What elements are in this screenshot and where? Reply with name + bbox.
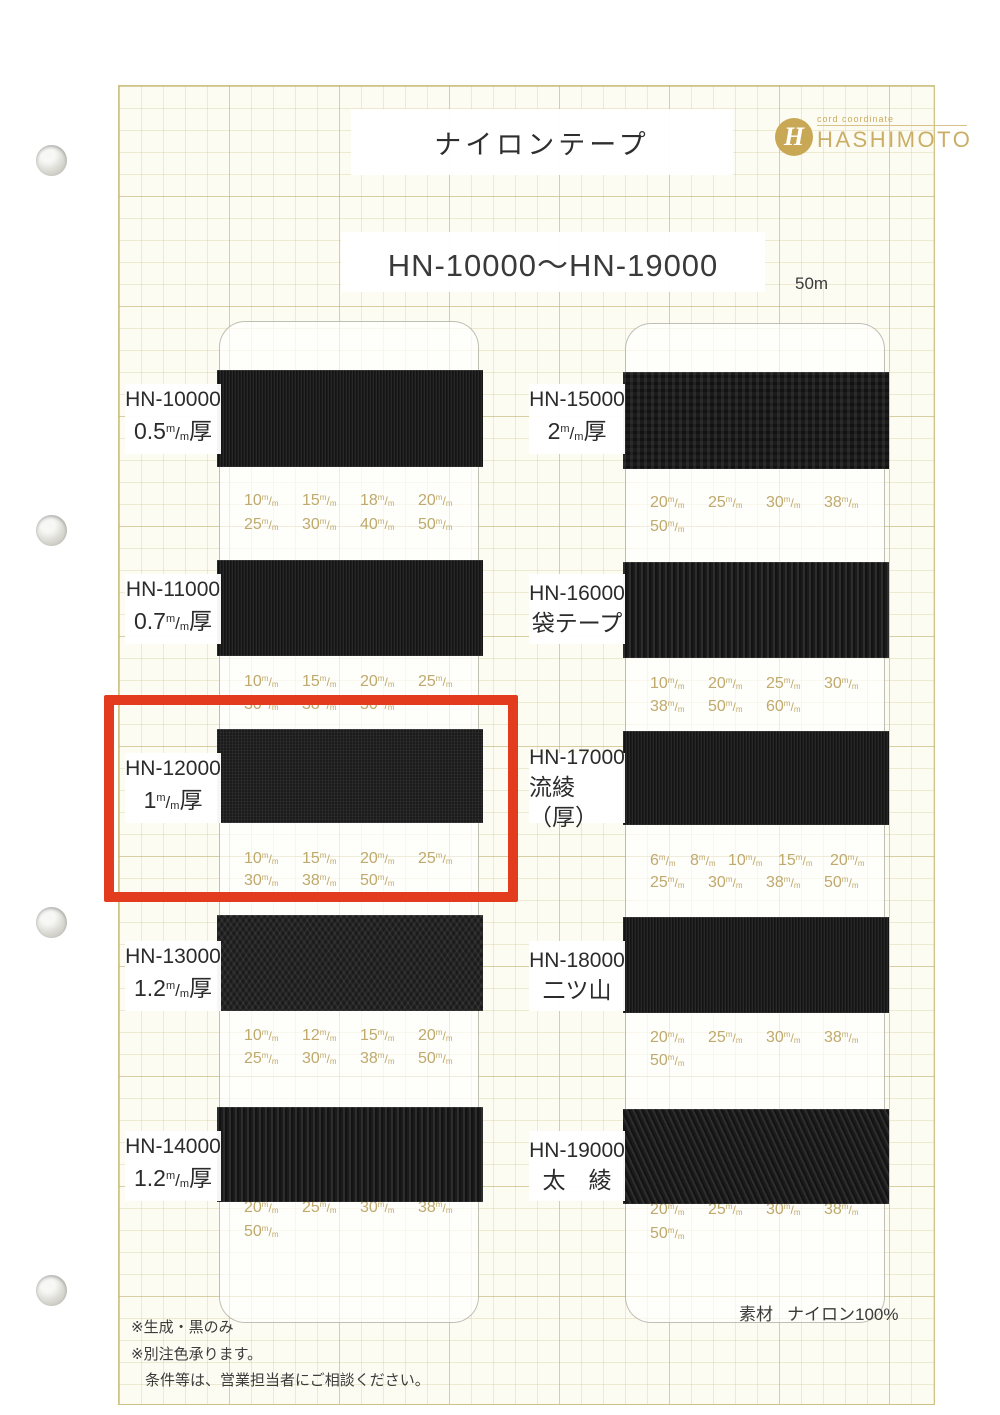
hashimoto-monogram-icon: H — [775, 118, 813, 156]
mm-unit: m/m — [668, 672, 685, 696]
size-list-hn-15000: 20m/m25m/m30m/m38m/m — [626, 491, 884, 515]
mm-unit: m/m — [166, 604, 189, 642]
mm-unit: m/m — [842, 491, 859, 515]
mm-unit: m/m — [320, 489, 337, 513]
mm-unit: m/m — [784, 695, 801, 719]
mm-unit: m/m — [436, 1024, 453, 1048]
size-value: 10 — [650, 675, 668, 692]
product-spec: 太 綾 — [543, 1165, 612, 1195]
mm-unit: m/m — [436, 1047, 453, 1071]
product-spec: 2m/m厚 — [548, 414, 607, 452]
size-item: 15m/m — [302, 489, 360, 513]
size-value: 40 — [360, 516, 378, 533]
size-value: 25 — [650, 874, 668, 891]
product-code: HN-17000 — [529, 744, 625, 772]
mm-unit: m/m — [668, 515, 685, 539]
tape-sample-hn-18000 — [623, 917, 889, 1013]
product-spec: 1.2m/m厚 — [134, 971, 212, 1009]
size-value: 50 — [650, 1225, 668, 1242]
size-value: 20 — [650, 1029, 668, 1046]
mm-unit: m/m — [320, 1024, 337, 1048]
size-value: 50 — [650, 518, 668, 535]
size-value: 38 — [824, 494, 842, 511]
size-item: 25m/m — [244, 513, 302, 537]
tape-sample-hn-19000 — [623, 1109, 889, 1204]
size-item: 20m/m — [418, 1024, 476, 1048]
size-item: 10m/m — [650, 672, 708, 696]
size-item: 38m/m — [360, 1047, 418, 1071]
product-code: HN-14000 — [125, 1133, 221, 1161]
product-code: HN-11000 — [126, 576, 220, 604]
mm-unit: m/m — [746, 849, 763, 873]
size-item: 20m/m — [650, 1026, 708, 1050]
size-list-hn-10000: 25m/m30m/m40m/m50m/m — [220, 513, 478, 537]
mm-unit: m/m — [668, 491, 685, 515]
mm-unit: m/m — [842, 871, 859, 895]
size-list-hn-19000: 50m/m — [626, 1222, 884, 1246]
mm-unit: m/m — [784, 1026, 801, 1050]
mm-unit: m/m — [784, 871, 801, 895]
size-item: 10m/m — [728, 849, 778, 873]
mm-unit: m/m — [668, 695, 685, 719]
size-item: 60m/m — [766, 695, 824, 719]
product-code: HN-19000 — [529, 1137, 625, 1165]
size-list-hn-15000: 50m/m — [626, 515, 884, 539]
size-value: 25 — [708, 1029, 726, 1046]
tape-sample-hn-14000 — [217, 1107, 483, 1202]
tape-sample-hn-13000 — [217, 915, 483, 1011]
product-code: HN-18000 — [529, 947, 625, 975]
mm-unit: m/m — [262, 1047, 279, 1071]
mm-unit: m/m — [166, 1161, 189, 1199]
size-item: 38m/m — [766, 871, 824, 895]
size-value: 50 — [244, 1223, 262, 1240]
material-note: 素材ナイロン100% — [739, 1300, 898, 1325]
size-value: 20 — [830, 852, 848, 869]
product-label-hn-13000: HN-130001.2m/m厚 — [125, 941, 221, 1011]
mm-unit: m/m — [659, 849, 676, 873]
size-item: 50m/m — [650, 1222, 708, 1246]
product-code: HN-16000 — [529, 580, 625, 608]
size-item: 30m/m — [766, 1026, 824, 1050]
size-value: 25 — [708, 494, 726, 511]
product-spec: 1.2m/m厚 — [134, 1161, 212, 1199]
size-item: 20m/m — [418, 489, 476, 513]
tape-sample-hn-17000 — [623, 731, 889, 825]
mm-unit: m/m — [378, 489, 395, 513]
mm-unit: m/m — [378, 1047, 395, 1071]
size-value: 20 — [360, 673, 378, 690]
size-value: 38 — [824, 1029, 842, 1046]
mm-unit: m/m — [726, 491, 743, 515]
binder-hole — [36, 145, 67, 176]
material-label: 素材 — [739, 1305, 773, 1324]
footer-note: 条件等は、営業担当者にご相談ください。 — [145, 1369, 430, 1390]
mm-unit: m/m — [784, 491, 801, 515]
size-value: 50 — [824, 874, 842, 891]
size-item: 20m/m — [830, 849, 886, 873]
size-value: 25 — [418, 673, 436, 690]
size-value: 30 — [302, 1050, 320, 1067]
mm-unit: m/m — [726, 672, 743, 696]
size-value: 50 — [650, 1052, 668, 1069]
size-value: 30 — [302, 516, 320, 533]
size-value: 10 — [244, 673, 262, 690]
mm-unit: m/m — [166, 414, 189, 452]
size-list-hn-18000: 50m/m — [626, 1049, 884, 1073]
size-item: 30m/m — [302, 513, 360, 537]
size-value: 8 — [690, 852, 699, 869]
size-value: 15 — [360, 1027, 378, 1044]
size-value: 30 — [766, 1029, 784, 1046]
size-value: 20 — [418, 492, 436, 509]
size-item: 50m/m — [708, 695, 766, 719]
sample-card-right: 20m/m25m/m30m/m38m/m50m/m10m/m20m/m25m/m… — [625, 323, 885, 1323]
product-code: HN-15000 — [529, 386, 625, 414]
product-label-hn-17000: HN-17000流綾（厚） — [529, 753, 625, 823]
roll-length-note: 50m — [795, 274, 828, 294]
mm-unit: m/m — [796, 849, 813, 873]
page-title: ナイロンテープ — [434, 123, 649, 162]
size-value: 10 — [244, 492, 262, 509]
product-label-hn-10000: HN-100000.5m/m厚 — [125, 384, 221, 454]
size-value: 10 — [728, 852, 746, 869]
size-item: 38m/m — [824, 1026, 882, 1050]
mm-unit: m/m — [784, 672, 801, 696]
mm-unit: m/m — [262, 513, 279, 537]
product-label-hn-11000: HN-110000.7m/m厚 — [125, 574, 221, 644]
product-spec: 0.7m/m厚 — [134, 604, 212, 642]
size-item: 25m/m — [244, 1047, 302, 1071]
mm-unit: m/m — [668, 1222, 685, 1246]
size-value: 25 — [244, 1050, 262, 1067]
size-list-hn-16000: 10m/m20m/m25m/m30m/m — [626, 672, 884, 696]
size-item: 25m/m — [766, 672, 824, 696]
size-list-hn-17000: 6m/m8m/m10m/m15m/m20m/m — [626, 849, 884, 873]
size-item: 40m/m — [360, 513, 418, 537]
brand-name: HASHIMOTO — [817, 127, 972, 153]
product-spec: 0.5m/m厚 — [134, 414, 212, 452]
mm-unit: m/m — [378, 513, 395, 537]
size-value: 10 — [244, 1027, 262, 1044]
size-item: 15m/m — [302, 670, 360, 694]
product-spec: 二ツ山 — [543, 975, 612, 1005]
size-list-hn-17000: 25m/m30m/m38m/m50m/m — [626, 871, 884, 895]
mm-unit: m/m — [842, 672, 859, 696]
page-title-label: ナイロンテープ — [351, 109, 733, 175]
size-value: 38 — [360, 1050, 378, 1067]
size-item: 15m/m — [360, 1024, 418, 1048]
binder-hole — [36, 1275, 67, 1306]
mm-unit: m/m — [166, 971, 189, 1009]
mm-unit: m/m — [436, 513, 453, 537]
material-value: ナイロン100% — [787, 1305, 898, 1324]
size-item: 20m/m — [708, 672, 766, 696]
mm-unit: m/m — [842, 1026, 859, 1050]
size-item: 50m/m — [824, 871, 882, 895]
size-item: 38m/m — [824, 491, 882, 515]
mm-unit: m/m — [320, 1047, 337, 1071]
tape-sample-hn-11000 — [217, 560, 483, 656]
mm-unit: m/m — [726, 871, 743, 895]
size-item: 12m/m — [302, 1024, 360, 1048]
size-value: 38 — [766, 874, 784, 891]
monogram-letter: H — [784, 122, 804, 152]
mm-unit: m/m — [848, 849, 865, 873]
mm-unit: m/m — [378, 670, 395, 694]
mm-unit: m/m — [320, 670, 337, 694]
size-item: 10m/m — [244, 1024, 302, 1048]
tape-sample-hn-10000 — [217, 370, 483, 467]
mm-unit: m/m — [726, 695, 743, 719]
size-item: 25m/m — [650, 871, 708, 895]
size-item: 15m/m — [778, 849, 830, 873]
mm-unit: m/m — [436, 670, 453, 694]
range-heading-label: HN-10000～HN-19000 — [341, 232, 765, 292]
size-value: 25 — [766, 675, 784, 692]
size-value: 20 — [708, 675, 726, 692]
size-list-hn-13000: 25m/m30m/m38m/m50m/m — [220, 1047, 478, 1071]
size-item: 8m/m — [690, 849, 728, 873]
brand-logo: H cord coordinate HASHIMOTO — [775, 112, 1000, 166]
product-spec: 流綾（厚） — [529, 772, 625, 832]
product-label-hn-18000: HN-18000二ツ山 — [529, 941, 625, 1011]
mm-unit: m/m — [320, 513, 337, 537]
brand-text: cord coordinate HASHIMOTO — [817, 114, 972, 153]
product-spec: 袋テープ — [532, 608, 623, 638]
size-item: 30m/m — [766, 491, 824, 515]
size-value: 60 — [766, 698, 784, 715]
mm-unit: m/m — [262, 1220, 279, 1244]
size-item: 6m/m — [650, 849, 690, 873]
size-value: 30 — [824, 675, 842, 692]
size-item: 50m/m — [650, 515, 708, 539]
tape-sample-hn-15000 — [623, 372, 889, 469]
size-value: 30 — [766, 494, 784, 511]
size-item: 50m/m — [244, 1220, 302, 1244]
mm-unit: m/m — [262, 489, 279, 513]
size-item: 50m/m — [418, 1047, 476, 1071]
mm-unit: m/m — [378, 1024, 395, 1048]
size-item: 18m/m — [360, 489, 418, 513]
size-item: 50m/m — [650, 1049, 708, 1073]
mm-unit: m/m — [668, 1049, 685, 1073]
size-list-hn-16000: 38m/m50m/m60m/m — [626, 695, 884, 719]
size-item: 38m/m — [650, 695, 708, 719]
binder-hole — [36, 907, 67, 938]
highlight-box-hn-12000 — [104, 695, 518, 902]
size-item: 30m/m — [708, 871, 766, 895]
mm-unit: m/m — [262, 670, 279, 694]
size-item: 25m/m — [418, 670, 476, 694]
size-list-hn-13000: 10m/m12m/m15m/m20m/m — [220, 1024, 478, 1048]
size-value: 50 — [708, 698, 726, 715]
size-item: 20m/m — [650, 491, 708, 515]
footer-note: ※生成・黒のみ — [131, 1316, 234, 1337]
product-label-hn-14000: HN-140001.2m/m厚 — [125, 1131, 221, 1201]
size-value: 25 — [244, 516, 262, 533]
graph-paper-sheet: ナイロンテープ H cord coordinate HASHIMOTO HN-1… — [118, 85, 935, 1405]
size-item: 10m/m — [244, 489, 302, 513]
size-item: 20m/m — [360, 670, 418, 694]
size-value: 50 — [418, 516, 436, 533]
size-list-hn-11000: 10m/m15m/m20m/m25m/m — [220, 670, 478, 694]
brand-tagline: cord coordinate — [817, 114, 967, 126]
mm-unit: m/m — [436, 489, 453, 513]
product-label-hn-19000: HN-19000太 綾 — [529, 1131, 625, 1201]
binder-hole — [36, 515, 67, 546]
tape-sample-hn-16000 — [623, 562, 889, 658]
product-label-hn-16000: HN-16000袋テープ — [529, 574, 625, 644]
mm-unit: m/m — [668, 1026, 685, 1050]
size-list-hn-10000: 10m/m15m/m18m/m20m/m — [220, 489, 478, 513]
size-value: 15 — [302, 492, 320, 509]
size-value: 12 — [302, 1027, 320, 1044]
size-value: 20 — [418, 1027, 436, 1044]
size-item: 50m/m — [418, 513, 476, 537]
size-item: 25m/m — [708, 1026, 766, 1050]
product-code: HN-10000 — [125, 386, 221, 414]
size-value: 18 — [360, 492, 378, 509]
size-value: 15 — [302, 673, 320, 690]
size-item: 10m/m — [244, 670, 302, 694]
size-value: 6 — [650, 852, 659, 869]
product-code: HN-13000 — [125, 943, 221, 971]
size-item: 25m/m — [708, 491, 766, 515]
size-value: 15 — [778, 852, 796, 869]
mm-unit: m/m — [262, 1024, 279, 1048]
size-item: 30m/m — [302, 1047, 360, 1071]
size-list-hn-18000: 20m/m25m/m30m/m38m/m — [626, 1026, 884, 1050]
size-value: 50 — [418, 1050, 436, 1067]
footer-note: ※別注色承ります。 — [131, 1343, 262, 1364]
mm-unit: m/m — [560, 414, 583, 452]
product-label-hn-15000: HN-150002m/m厚 — [529, 384, 625, 454]
size-value: 30 — [708, 874, 726, 891]
size-list-hn-14000: 50m/m — [220, 1220, 478, 1244]
catalog-page: ナイロンテープ H cord coordinate HASHIMOTO HN-1… — [0, 0, 1000, 1415]
size-item: 30m/m — [824, 672, 882, 696]
mm-unit: m/m — [726, 1026, 743, 1050]
mm-unit: m/m — [668, 871, 685, 895]
size-value: 38 — [650, 698, 668, 715]
range-heading: HN-10000～HN-19000 — [388, 240, 719, 285]
size-value: 20 — [650, 494, 668, 511]
mm-unit: m/m — [699, 849, 716, 873]
